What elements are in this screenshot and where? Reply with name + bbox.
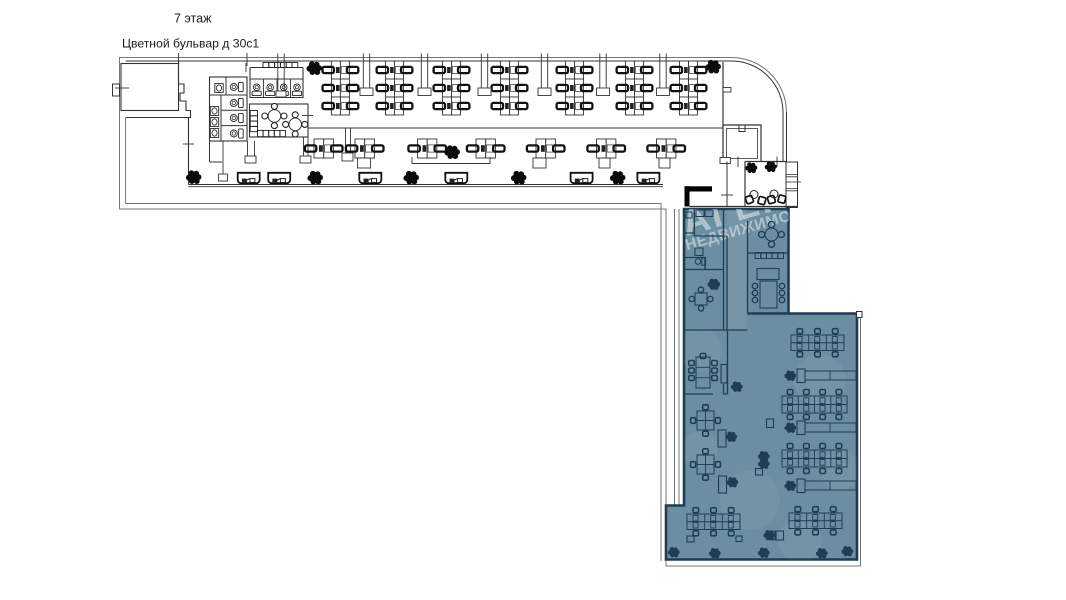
svg-text:7 этаж: 7 этаж [174, 12, 212, 26]
svg-text:Цветной бульвар д 30с1: Цветной бульвар д 30с1 [122, 37, 259, 51]
